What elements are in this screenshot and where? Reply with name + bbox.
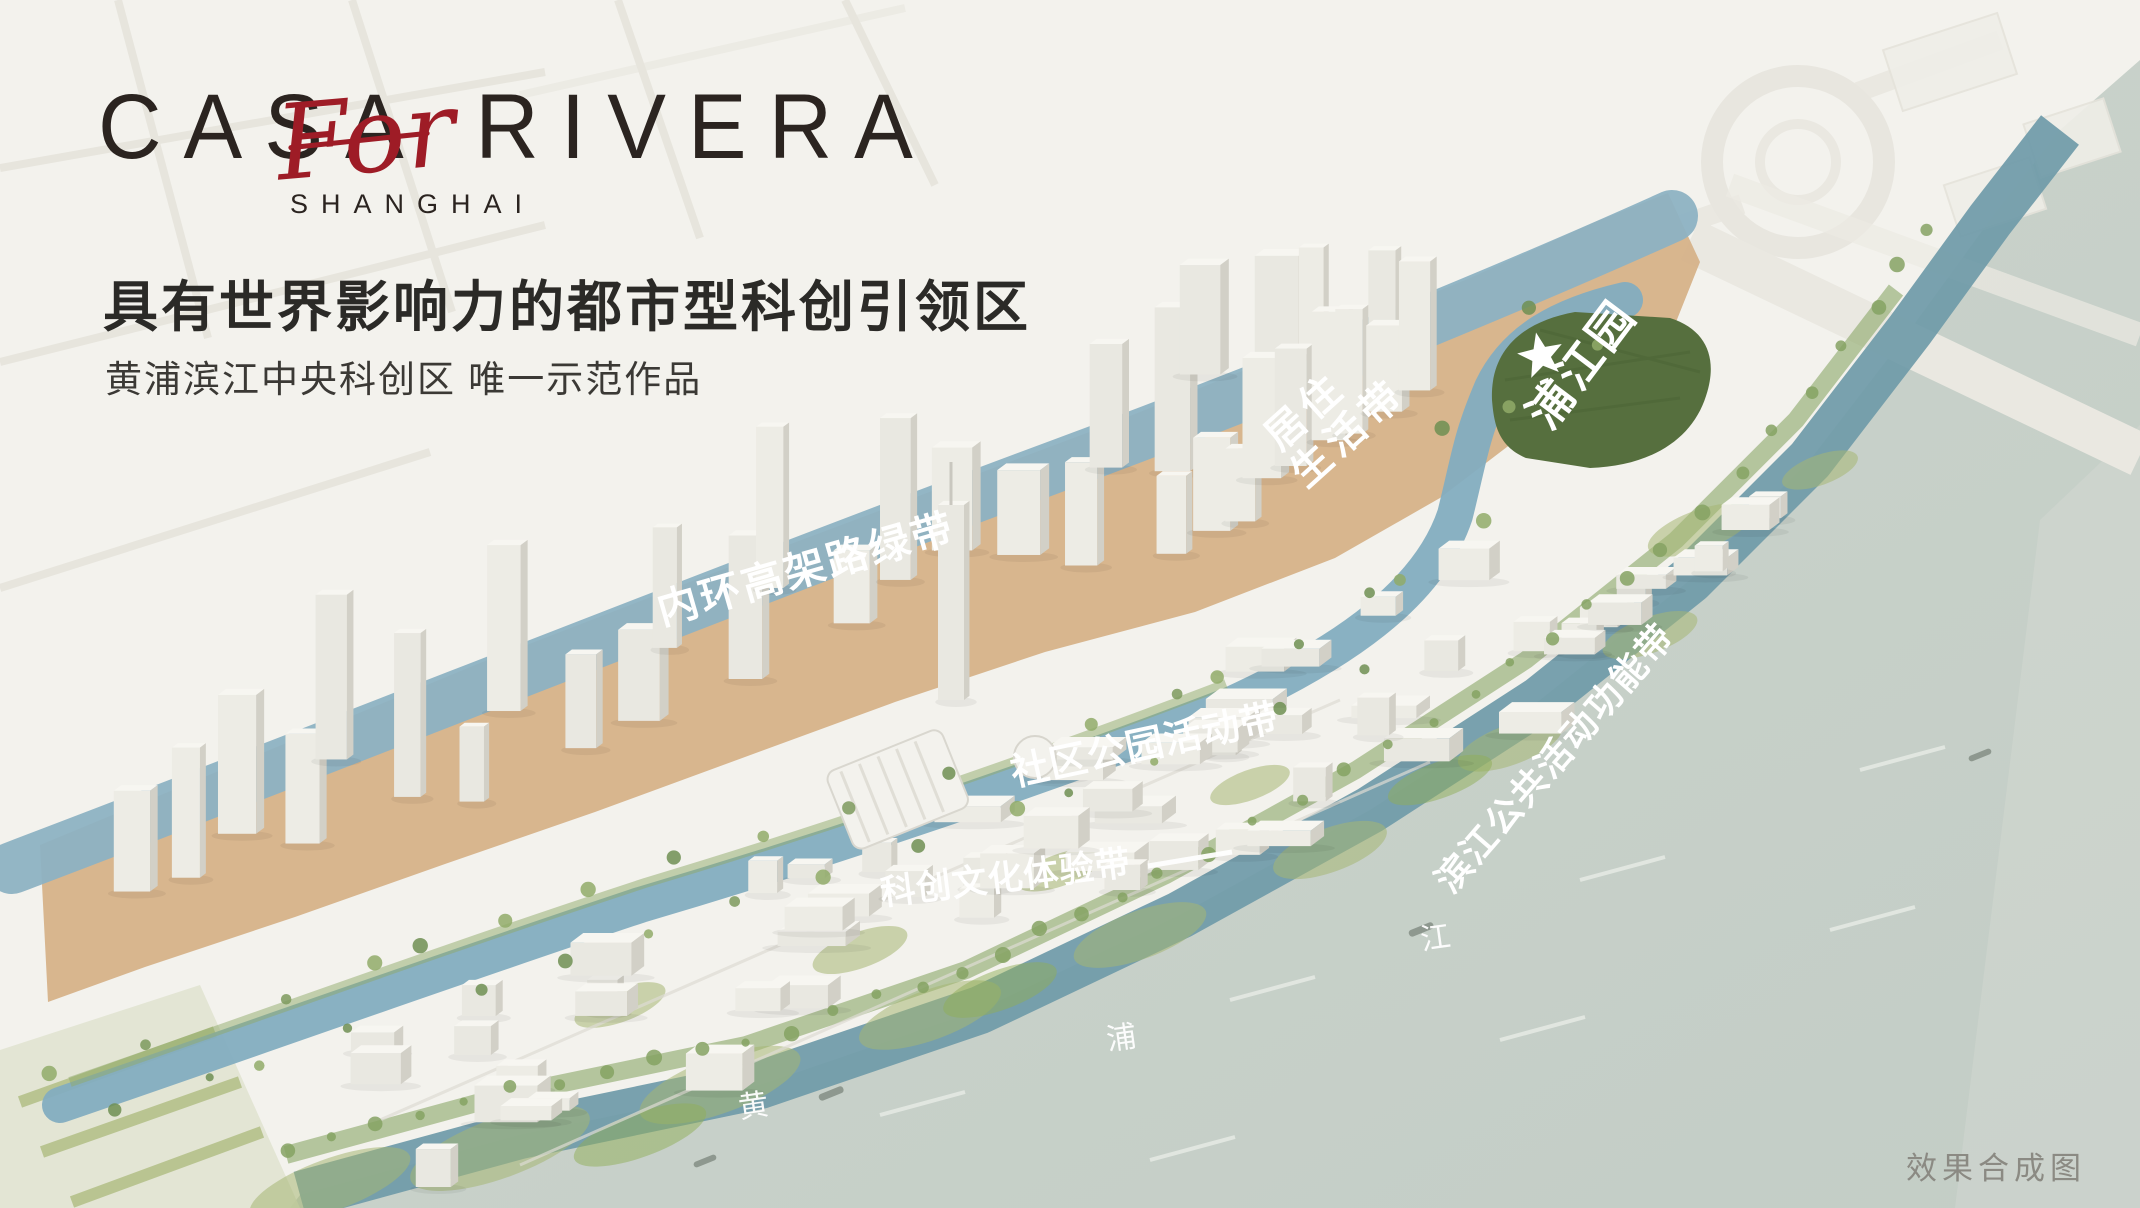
logo-subtitle-shanghai: SHANGHAI <box>290 189 535 220</box>
logo-script-for: For <box>272 76 459 195</box>
river-char-huang: 黄 <box>736 1088 770 1125</box>
brand-logo: CASA RIVERA <box>98 74 935 180</box>
render-caption: 效果合成图 <box>1906 1143 2086 1188</box>
river-char-jiang: 江 <box>1418 920 1452 957</box>
headline: 具有世界影响力的都市型科创引领区 <box>103 262 1031 342</box>
poster-canvas: 内环高架路绿带 居住 生活带 浦江园 社区公园活动带 滨江公共活动功能带 科创文… <box>0 0 2140 1208</box>
river-char-pu: 浦 <box>1104 1020 1138 1057</box>
subheadline: 黄浦滨江中央科创区 唯一示范作品 <box>105 349 702 403</box>
